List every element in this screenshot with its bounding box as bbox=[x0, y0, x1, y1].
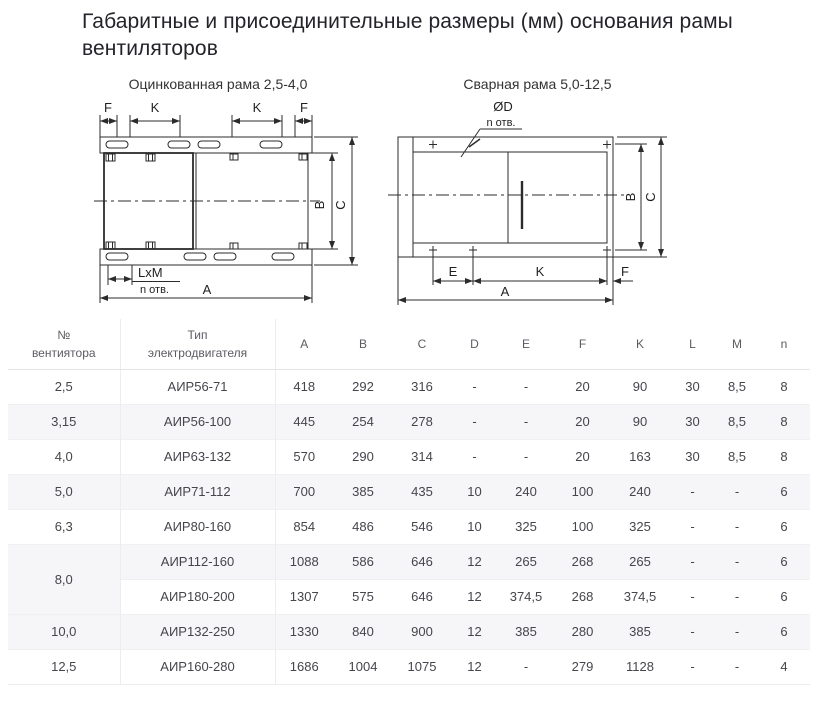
cell-A: 854 bbox=[275, 509, 333, 544]
table-row: АИР180-200 1307 575 646 12 374,5 268 374… bbox=[8, 579, 810, 614]
dim-label-k: K bbox=[536, 264, 545, 279]
cell-motor-type: АИР112-160 bbox=[120, 544, 275, 579]
cell-E: - bbox=[498, 439, 554, 474]
page-title: Габаритные и присоединительные размеры (… bbox=[82, 8, 754, 63]
bolt-icons-bottom bbox=[106, 242, 307, 249]
cell-C: 1075 bbox=[393, 649, 451, 684]
cell-D: - bbox=[451, 404, 498, 439]
cell-K: 240 bbox=[611, 474, 669, 509]
cell-B: 486 bbox=[333, 509, 393, 544]
cell-motor-type: АИР80-160 bbox=[120, 509, 275, 544]
cell-F: 268 bbox=[554, 544, 611, 579]
page: Габаритные и присоединительные размеры (… bbox=[0, 8, 818, 685]
cell-M: - bbox=[716, 544, 758, 579]
cell-M: - bbox=[716, 614, 758, 649]
cell-E: - bbox=[498, 369, 554, 404]
column-header-M: M bbox=[716, 319, 758, 370]
cell-F: 20 bbox=[554, 439, 611, 474]
cell-E: 385 bbox=[498, 614, 554, 649]
cell-B: 290 bbox=[333, 439, 393, 474]
column-header-E: E bbox=[498, 319, 554, 370]
cell-K: 90 bbox=[611, 404, 669, 439]
galvanized-frame-diagram: F K K F B C LxM n отв. A bbox=[20, 95, 380, 313]
cell-F: 280 bbox=[554, 614, 611, 649]
cell-B: 840 bbox=[333, 614, 393, 649]
dimensions-table: № вентиятора Тип электродвигателя A B C … bbox=[8, 319, 810, 685]
cell-n: 6 bbox=[758, 509, 810, 544]
cell-F: 20 bbox=[554, 369, 611, 404]
cell-K: 325 bbox=[611, 509, 669, 544]
column-header-C: C bbox=[393, 319, 451, 370]
cell-n: 6 bbox=[758, 579, 810, 614]
cell-M: 8,5 bbox=[716, 369, 758, 404]
cell-C: 316 bbox=[393, 369, 451, 404]
cell-A: 418 bbox=[275, 369, 333, 404]
cell-E: - bbox=[498, 649, 554, 684]
cell-M: 8,5 bbox=[716, 404, 758, 439]
dim-label-a: A bbox=[203, 282, 212, 297]
dim-label-e: E bbox=[449, 264, 458, 279]
cell-B: 575 bbox=[333, 579, 393, 614]
cell-D: 12 bbox=[451, 579, 498, 614]
cell-A: 570 bbox=[275, 439, 333, 474]
cell-F: 100 bbox=[554, 474, 611, 509]
cell-M: - bbox=[716, 509, 758, 544]
cell-E: 325 bbox=[498, 509, 554, 544]
cell-L: 30 bbox=[669, 439, 716, 474]
column-header-motor-type-line2: электродвигателя bbox=[123, 344, 273, 362]
cell-C: 900 bbox=[393, 614, 451, 649]
cell-D: 12 bbox=[451, 649, 498, 684]
table-row: 2,5 АИР56-71 418 292 316 - - 20 90 30 8,… bbox=[8, 369, 810, 404]
table-row: 12,5 АИР160-280 1686 1004 1075 12 - 279 … bbox=[8, 649, 810, 684]
column-header-A: A bbox=[275, 319, 333, 370]
column-header-D: D bbox=[451, 319, 498, 370]
table-row: 5,0 АИР71-112 700 385 435 10 240 100 240… bbox=[8, 474, 810, 509]
cell-L: 30 bbox=[669, 404, 716, 439]
dim-label-c: C bbox=[333, 200, 348, 209]
dim-label-b: B bbox=[312, 200, 327, 209]
bolt-icons-top bbox=[106, 154, 307, 161]
header-row: № вентиятора Тип электродвигателя A B C … bbox=[8, 319, 810, 370]
cell-A: 1307 bbox=[275, 579, 333, 614]
cell-n: 6 bbox=[758, 544, 810, 579]
cell-D: 10 bbox=[451, 509, 498, 544]
holes-count-label: n отв. bbox=[487, 117, 516, 129]
cell-n: 6 bbox=[758, 474, 810, 509]
cell-motor-type: АИР56-71 bbox=[120, 369, 275, 404]
cell-fan-number: 2,5 bbox=[8, 369, 120, 404]
cell-D: 12 bbox=[451, 614, 498, 649]
hole-cross-marks bbox=[429, 140, 611, 254]
cell-L: - bbox=[669, 649, 716, 684]
cell-M: 8,5 bbox=[716, 439, 758, 474]
cell-n: 8 bbox=[758, 369, 810, 404]
holes-count-label: n отв. bbox=[140, 284, 169, 296]
cell-A: 700 bbox=[275, 474, 333, 509]
cell-D: 10 bbox=[451, 474, 498, 509]
column-header-B: B bbox=[333, 319, 393, 370]
cell-L: - bbox=[669, 474, 716, 509]
dim-label-f-right: F bbox=[300, 100, 308, 115]
cell-fan-number: 3,15 bbox=[8, 404, 120, 439]
cell-K: 1128 bbox=[611, 649, 669, 684]
cell-B: 254 bbox=[333, 404, 393, 439]
cell-K: 374,5 bbox=[611, 579, 669, 614]
galvanized-frame-block: Оцинкованная рама 2,5-4,0 bbox=[20, 75, 380, 313]
cell-A: 1686 bbox=[275, 649, 333, 684]
welded-frame-diagram: ØD n отв. E K F A B C bbox=[385, 95, 690, 313]
cell-K: 90 bbox=[611, 369, 669, 404]
dim-label-f-left: F bbox=[104, 100, 112, 115]
cell-fan-number-rowspan: 8,0 bbox=[8, 544, 120, 614]
table-row: 4,0 АИР63-132 570 290 314 - - 20 163 30 … bbox=[8, 439, 810, 474]
welded-frame-title: Сварная рама 5,0-12,5 bbox=[385, 75, 690, 95]
hole-diameter-label: ØD bbox=[493, 99, 513, 114]
table-row: 6,3 АИР80-160 854 486 546 10 325 100 325… bbox=[8, 509, 810, 544]
dim-label-lxm: LxM bbox=[138, 265, 163, 280]
column-header-fan-number: № вентиятора bbox=[8, 319, 120, 370]
cell-C: 646 bbox=[393, 579, 451, 614]
cell-motor-type: АИР56-100 bbox=[120, 404, 275, 439]
cell-B: 586 bbox=[333, 544, 393, 579]
cell-L: - bbox=[669, 614, 716, 649]
cell-C: 646 bbox=[393, 544, 451, 579]
galvanized-frame-title: Оцинкованная рама 2,5-4,0 bbox=[20, 75, 380, 95]
cell-A: 1088 bbox=[275, 544, 333, 579]
cell-fan-number: 6,3 bbox=[8, 509, 120, 544]
cell-B: 292 bbox=[333, 369, 393, 404]
column-header-motor-type-line1: Тип bbox=[123, 326, 273, 344]
column-header-fan-number-line1: № bbox=[10, 326, 118, 344]
dim-label-b: B bbox=[623, 192, 638, 201]
cell-E: 374,5 bbox=[498, 579, 554, 614]
cell-A: 445 bbox=[275, 404, 333, 439]
cell-F: 100 bbox=[554, 509, 611, 544]
cell-L: - bbox=[669, 509, 716, 544]
cell-motor-type: АИР71-112 bbox=[120, 474, 275, 509]
cell-D: - bbox=[451, 439, 498, 474]
cell-C: 435 bbox=[393, 474, 451, 509]
column-header-fan-number-line2: вентиятора bbox=[10, 344, 118, 362]
column-header-n: n bbox=[758, 319, 810, 370]
cell-fan-number: 5,0 bbox=[8, 474, 120, 509]
dim-label-k-right: K bbox=[253, 100, 262, 115]
dim-label-k-left: K bbox=[151, 100, 160, 115]
cell-L: - bbox=[669, 579, 716, 614]
cell-motor-type: АИР132-250 bbox=[120, 614, 275, 649]
cell-motor-type: АИР63-132 bbox=[120, 439, 275, 474]
cell-E: 240 bbox=[498, 474, 554, 509]
cell-K: 385 bbox=[611, 614, 669, 649]
diagrams-section: Оцинкованная рама 2,5-4,0 bbox=[0, 75, 818, 315]
column-header-K: K bbox=[611, 319, 669, 370]
cell-M: - bbox=[716, 579, 758, 614]
cell-F: 268 bbox=[554, 579, 611, 614]
cell-K: 265 bbox=[611, 544, 669, 579]
cell-C: 278 bbox=[393, 404, 451, 439]
column-header-F: F bbox=[554, 319, 611, 370]
cell-D: 12 bbox=[451, 544, 498, 579]
dim-label-a: A bbox=[501, 284, 510, 299]
cell-M: - bbox=[716, 474, 758, 509]
cell-D: - bbox=[451, 369, 498, 404]
cell-n: 8 bbox=[758, 404, 810, 439]
dim-label-c: C bbox=[643, 192, 658, 201]
cell-A: 1330 bbox=[275, 614, 333, 649]
cell-C: 546 bbox=[393, 509, 451, 544]
cell-L: - bbox=[669, 544, 716, 579]
cell-n: 4 bbox=[758, 649, 810, 684]
cell-fan-number: 12,5 bbox=[8, 649, 120, 684]
cell-C: 314 bbox=[393, 439, 451, 474]
cell-F: 279 bbox=[554, 649, 611, 684]
cell-fan-number: 10,0 bbox=[8, 614, 120, 649]
cell-motor-type: АИР160-280 bbox=[120, 649, 275, 684]
cell-B: 385 bbox=[333, 474, 393, 509]
cell-n: 6 bbox=[758, 614, 810, 649]
cell-fan-number: 4,0 bbox=[8, 439, 120, 474]
cell-E: - bbox=[498, 404, 554, 439]
table-row: 3,15 АИР56-100 445 254 278 - - 20 90 30 … bbox=[8, 404, 810, 439]
column-header-L: L bbox=[669, 319, 716, 370]
table-row: 10,0 АИР132-250 1330 840 900 12 385 280 … bbox=[8, 614, 810, 649]
dim-label-f: F bbox=[621, 264, 629, 279]
cell-motor-type: АИР180-200 bbox=[120, 579, 275, 614]
cell-B: 1004 bbox=[333, 649, 393, 684]
cell-E: 265 bbox=[498, 544, 554, 579]
column-header-motor-type: Тип электродвигателя bbox=[120, 319, 275, 370]
cell-n: 8 bbox=[758, 439, 810, 474]
cell-L: 30 bbox=[669, 369, 716, 404]
cell-M: - bbox=[716, 649, 758, 684]
cell-K: 163 bbox=[611, 439, 669, 474]
table-row: 8,0 АИР112-160 1088 586 646 12 265 268 2… bbox=[8, 544, 810, 579]
welded-frame-block: Сварная рама 5,0-12,5 bbox=[385, 75, 690, 313]
cell-F: 20 bbox=[554, 404, 611, 439]
